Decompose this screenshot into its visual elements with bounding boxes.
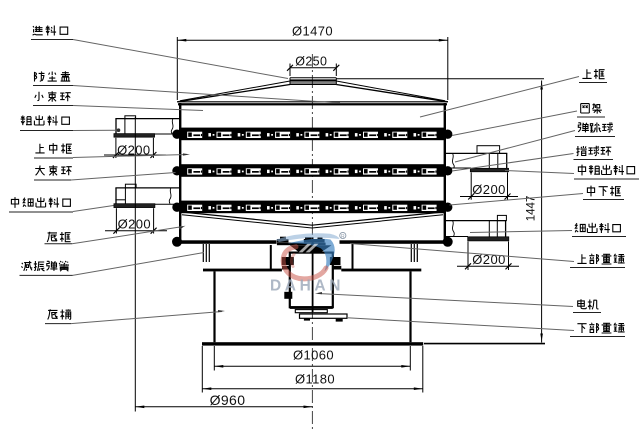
svg-text:Ø200: Ø200 <box>472 182 505 197</box>
svg-text:Ø200: Ø200 <box>117 142 150 157</box>
svg-text:Ø960: Ø960 <box>210 392 246 408</box>
svg-text:DAHAN: DAHAN <box>270 278 344 295</box>
svg-text:Ø250: Ø250 <box>295 54 327 68</box>
svg-text:1447: 1447 <box>526 196 538 222</box>
svg-text:Ø1470: Ø1470 <box>292 23 333 38</box>
svg-text:Ø1180: Ø1180 <box>295 371 335 386</box>
svg-text:R: R <box>341 234 345 240</box>
svg-text:Ø200: Ø200 <box>118 216 151 231</box>
svg-text:Ø1060: Ø1060 <box>293 348 334 363</box>
